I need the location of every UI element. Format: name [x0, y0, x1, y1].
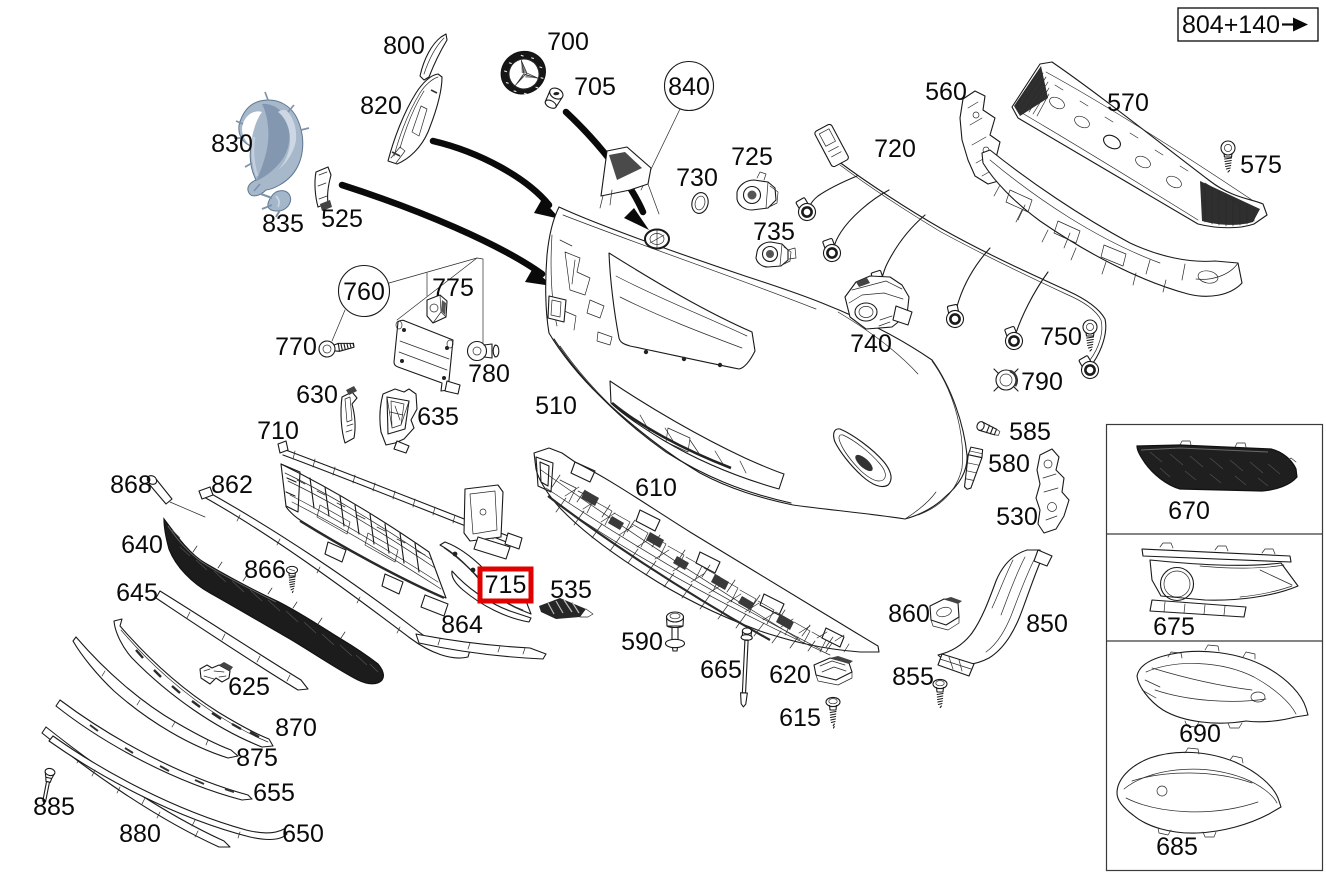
svg-text:870: 870 — [275, 714, 317, 742]
svg-text:625: 625 — [228, 673, 270, 701]
svg-text:725: 725 — [731, 143, 773, 171]
svg-text:740: 740 — [850, 330, 892, 358]
svg-text:864: 864 — [441, 611, 483, 639]
svg-text:580: 580 — [988, 450, 1030, 478]
svg-text:570: 570 — [1107, 89, 1149, 117]
svg-text:866: 866 — [244, 556, 286, 584]
svg-text:655: 655 — [253, 779, 295, 807]
svg-text:685: 685 — [1156, 833, 1198, 861]
svg-text:630: 630 — [296, 381, 338, 409]
svg-text:665: 665 — [700, 656, 742, 684]
svg-text:535: 535 — [550, 576, 592, 604]
svg-text:710: 710 — [257, 417, 299, 445]
svg-text:868: 868 — [110, 471, 152, 499]
svg-text:840: 840 — [668, 73, 710, 101]
svg-text:530: 530 — [996, 503, 1038, 531]
svg-text:525: 525 — [321, 205, 363, 233]
svg-text:880: 880 — [119, 820, 161, 848]
svg-text:775: 775 — [432, 274, 474, 302]
svg-text:715: 715 — [485, 571, 527, 599]
svg-text:675: 675 — [1153, 613, 1195, 641]
svg-text:615: 615 — [779, 704, 821, 732]
svg-text:804+140: 804+140 — [1182, 11, 1280, 39]
svg-text:750: 750 — [1040, 323, 1082, 351]
svg-text:635: 635 — [417, 403, 459, 431]
svg-text:800: 800 — [383, 32, 425, 60]
svg-text:875: 875 — [236, 744, 278, 772]
svg-text:645: 645 — [116, 579, 158, 607]
svg-text:610: 610 — [635, 474, 677, 502]
svg-text:790: 790 — [1021, 368, 1063, 396]
svg-text:850: 850 — [1026, 610, 1068, 638]
svg-text:820: 820 — [360, 92, 402, 120]
svg-text:585: 585 — [1009, 418, 1051, 446]
svg-text:760: 760 — [343, 278, 385, 306]
svg-text:705: 705 — [574, 73, 616, 101]
svg-text:690: 690 — [1179, 720, 1221, 748]
svg-text:720: 720 — [874, 135, 916, 163]
svg-text:670: 670 — [1168, 497, 1210, 525]
svg-text:560: 560 — [925, 78, 967, 106]
svg-text:640: 640 — [121, 531, 163, 559]
svg-text:510: 510 — [535, 392, 577, 420]
svg-text:860: 860 — [888, 600, 930, 628]
svg-text:780: 780 — [468, 360, 510, 388]
svg-text:770: 770 — [275, 333, 317, 361]
svg-text:590: 590 — [621, 628, 663, 656]
svg-text:575: 575 — [1240, 151, 1282, 179]
svg-text:835: 835 — [262, 210, 304, 238]
svg-text:650: 650 — [282, 820, 324, 848]
svg-text:855: 855 — [892, 663, 934, 691]
svg-text:735: 735 — [753, 218, 795, 246]
svg-text:885: 885 — [33, 793, 75, 821]
svg-text:730: 730 — [676, 164, 718, 192]
svg-text:620: 620 — [769, 661, 811, 689]
svg-text:830: 830 — [211, 130, 253, 158]
svg-text:862: 862 — [211, 471, 253, 499]
svg-text:700: 700 — [547, 28, 589, 56]
